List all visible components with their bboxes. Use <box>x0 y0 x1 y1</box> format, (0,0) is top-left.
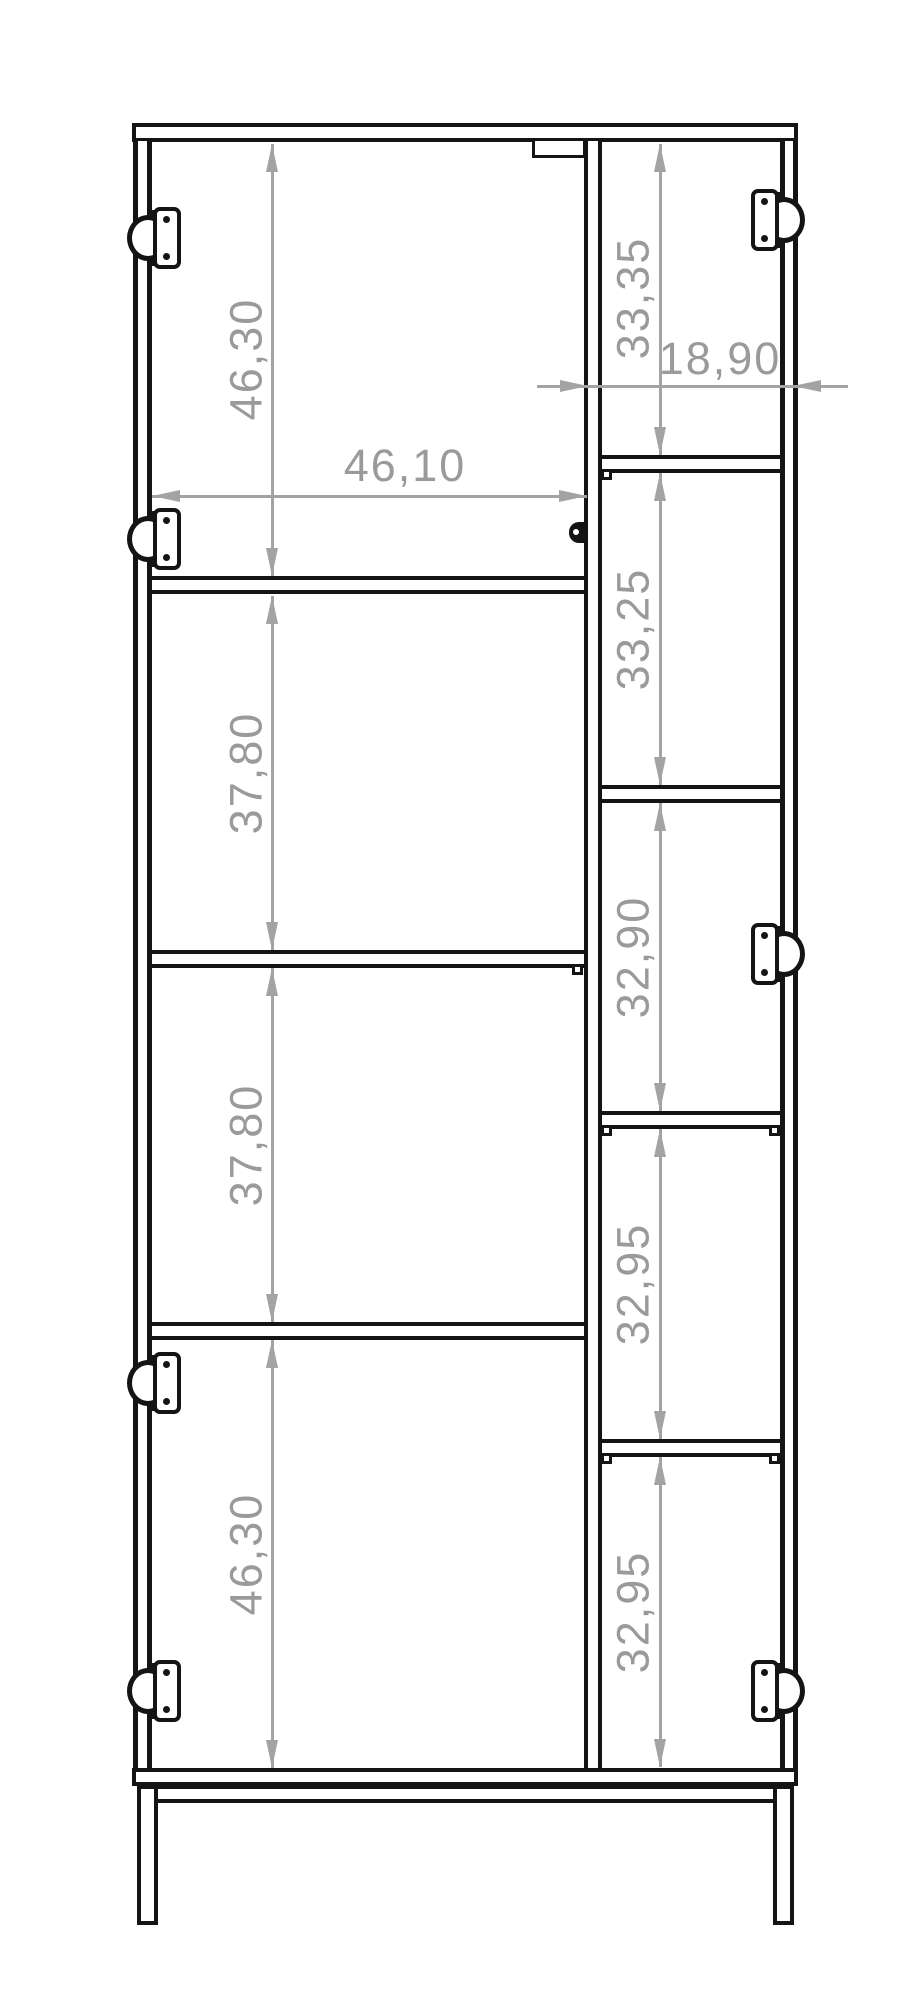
base-rail <box>137 1785 794 1803</box>
bottom-panel <box>132 1768 798 1786</box>
dim-label: 46,10 <box>325 436 485 496</box>
door-catch-icon <box>569 522 586 543</box>
arrow-down-icon <box>654 427 666 455</box>
arrow-up-icon <box>266 596 278 624</box>
arrow-right-icon <box>560 380 588 392</box>
arrow-left-icon <box>152 490 180 502</box>
arrow-down-icon <box>266 1740 278 1768</box>
arrow-down-icon <box>266 548 278 576</box>
hinge-icon <box>751 923 805 985</box>
top-mounting-bracket <box>532 141 586 158</box>
left-shelf-1 <box>150 576 586 594</box>
hinge-icon <box>751 1660 805 1722</box>
cabinet-technical-drawing: 46,30 37,80 37,80 46,30 33,35 33,25 32,9… <box>0 0 915 2000</box>
dim-label: 32,90 <box>563 887 703 1027</box>
hinge-icon <box>127 508 181 570</box>
left-shelf-3 <box>150 1322 586 1340</box>
right-shelf-2 <box>600 785 782 803</box>
hinge-icon <box>127 1352 181 1414</box>
arrow-up-icon <box>266 144 278 172</box>
left-side-panel <box>133 141 152 1769</box>
arrow-up-icon <box>654 803 666 831</box>
dim-label: 18,90 <box>640 329 800 389</box>
dim-label: 46,30 <box>176 289 316 429</box>
right-shelf-4 <box>600 1439 782 1457</box>
right-leg <box>773 1785 794 1925</box>
arrow-up-icon <box>654 1129 666 1157</box>
arrow-right-icon <box>559 490 587 502</box>
top-panel <box>132 123 798 142</box>
shelf-pin <box>769 1456 780 1464</box>
left-leg <box>137 1785 158 1925</box>
arrow-up-icon <box>654 1457 666 1485</box>
shelf-pin <box>601 1456 612 1464</box>
right-shelf-1 <box>600 455 782 473</box>
hinge-icon <box>127 207 181 269</box>
arrow-down-icon <box>654 1411 666 1439</box>
arrow-up-icon <box>654 144 666 172</box>
dim-label: 32,95 <box>563 1214 703 1354</box>
dim-label: 46,30 <box>176 1484 316 1624</box>
shelf-pin <box>769 1128 780 1136</box>
dim-label: 32,95 <box>563 1542 703 1682</box>
dim-label: 37,80 <box>176 703 316 843</box>
dim-label: 33,25 <box>563 559 703 699</box>
shelf-pin <box>601 1128 612 1136</box>
arrow-down-icon <box>654 1739 666 1767</box>
arrow-up-icon <box>266 968 278 996</box>
hinge-icon <box>127 1660 181 1722</box>
arrow-up-icon <box>654 473 666 501</box>
dim-label: 37,80 <box>176 1075 316 1215</box>
right-shelf-3 <box>600 1111 782 1129</box>
hinge-icon <box>751 189 805 251</box>
arrow-down-icon <box>654 757 666 785</box>
shelf-pin <box>601 472 612 480</box>
arrow-up-icon <box>266 1340 278 1368</box>
left-shelf-2 <box>150 950 586 968</box>
arrow-down-icon <box>654 1083 666 1111</box>
arrow-down-icon <box>266 922 278 950</box>
arrow-down-icon <box>266 1294 278 1322</box>
